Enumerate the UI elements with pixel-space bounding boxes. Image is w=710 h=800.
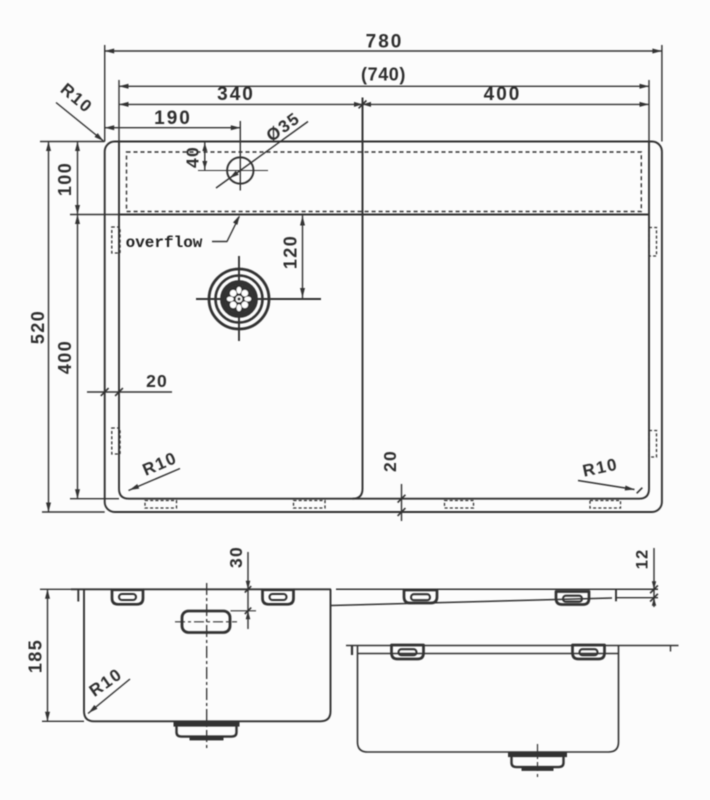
svg-text:20: 20 xyxy=(146,371,168,391)
svg-text:400: 400 xyxy=(484,84,522,105)
svg-text:120: 120 xyxy=(281,235,301,269)
svg-text:30: 30 xyxy=(226,546,246,568)
svg-text:100: 100 xyxy=(55,162,75,196)
svg-text:(740): (740) xyxy=(361,65,406,85)
svg-text:340: 340 xyxy=(217,84,255,105)
svg-text:780: 780 xyxy=(366,32,404,53)
svg-text:20: 20 xyxy=(380,450,400,472)
svg-text:40: 40 xyxy=(183,146,203,168)
svg-text:overflow: overflow xyxy=(126,234,203,252)
svg-text:520: 520 xyxy=(28,310,48,344)
svg-text:190: 190 xyxy=(154,108,192,129)
svg-text:185: 185 xyxy=(26,639,46,673)
svg-text:400: 400 xyxy=(55,340,75,374)
svg-text:12: 12 xyxy=(634,549,652,569)
